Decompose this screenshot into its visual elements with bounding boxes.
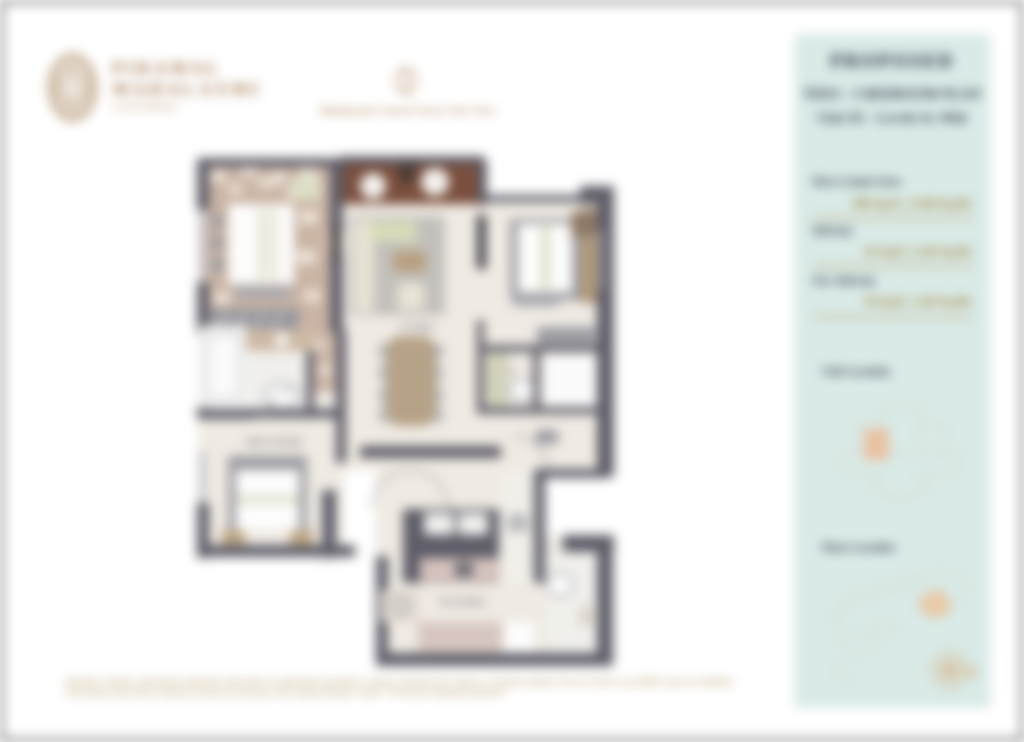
svg-text:BED ROOM: BED ROOM	[247, 437, 302, 447]
svg-text:KITCHEN: KITCHEN	[440, 597, 485, 607]
svg-text:LIVING: LIVING	[400, 322, 434, 332]
